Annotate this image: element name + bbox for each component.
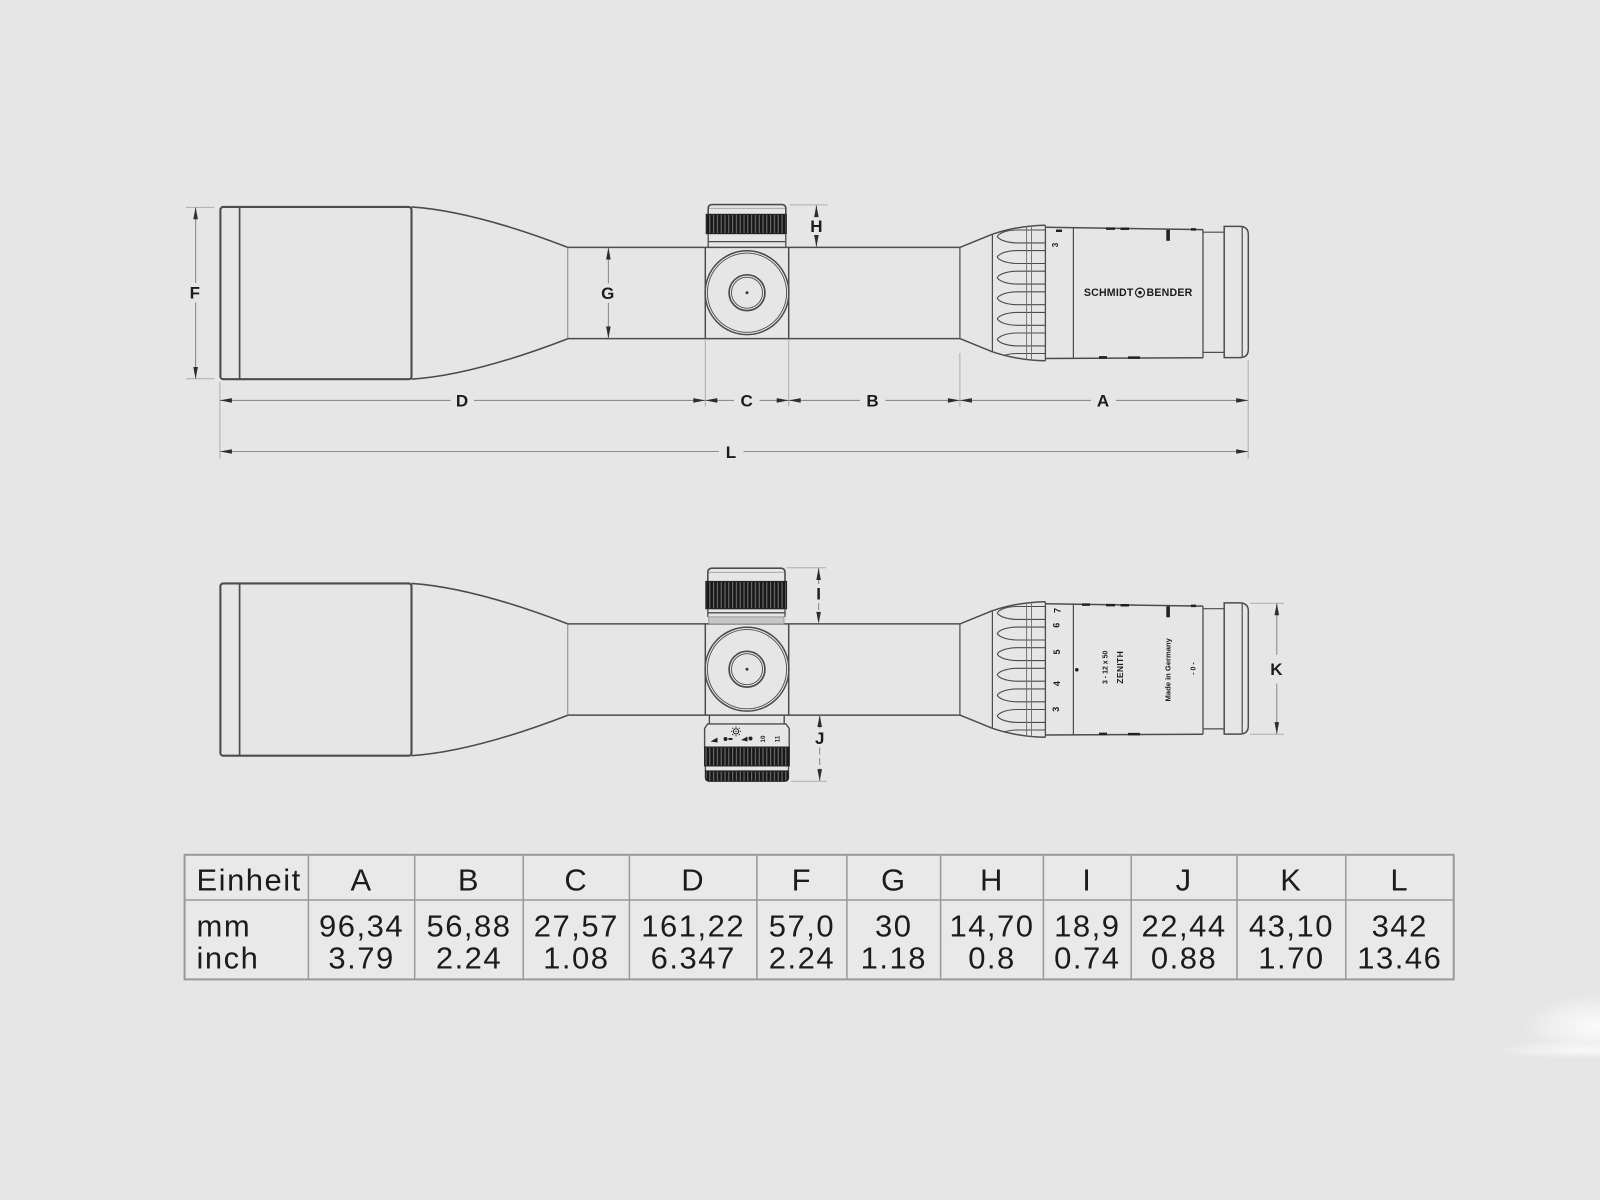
svg-text:18,9: 18,9 — [1054, 909, 1120, 944]
svg-text:inch: inch — [197, 941, 260, 976]
svg-text:22,44: 22,44 — [1142, 909, 1227, 944]
svg-text:A: A — [1097, 392, 1109, 411]
svg-text:96,34: 96,34 — [319, 909, 404, 944]
svg-text:3.79: 3.79 — [328, 941, 394, 976]
svg-text:SCHMIDT: SCHMIDT — [1084, 287, 1134, 299]
svg-text:342: 342 — [1372, 909, 1428, 944]
svg-text:I: I — [816, 585, 821, 604]
svg-text:C: C — [740, 392, 752, 411]
svg-text:G: G — [601, 284, 614, 303]
svg-text:D: D — [456, 392, 468, 411]
svg-text:3: 3 — [1051, 242, 1060, 247]
svg-text:B: B — [866, 392, 878, 411]
svg-text:D: D — [681, 863, 705, 898]
svg-text:11: 11 — [775, 735, 782, 742]
svg-text:G: G — [881, 863, 907, 898]
svg-text:J: J — [815, 729, 824, 748]
svg-text:BENDER: BENDER — [1147, 287, 1193, 299]
svg-text:1.08: 1.08 — [543, 941, 609, 976]
svg-text:K: K — [1270, 660, 1283, 679]
svg-text:13.46: 13.46 — [1357, 941, 1442, 976]
svg-text:14,70: 14,70 — [949, 909, 1034, 944]
svg-text:C: C — [564, 863, 588, 898]
svg-text:56,88: 56,88 — [426, 909, 511, 944]
svg-text:I: I — [1082, 863, 1092, 898]
svg-text:1.18: 1.18 — [861, 941, 927, 976]
svg-text:ZENITH: ZENITH — [1115, 651, 1125, 684]
svg-text:4: 4 — [1052, 681, 1062, 686]
svg-text:L: L — [726, 443, 736, 462]
svg-text:6: 6 — [1052, 623, 1062, 628]
svg-text:30: 30 — [875, 909, 912, 944]
svg-text:H: H — [810, 217, 822, 236]
svg-text:6.347: 6.347 — [651, 941, 736, 976]
svg-text:10: 10 — [760, 735, 767, 742]
svg-text:57,0: 57,0 — [769, 909, 835, 944]
svg-text:5: 5 — [1052, 649, 1062, 654]
svg-text:F: F — [792, 863, 812, 898]
svg-text:3: 3 — [1051, 707, 1061, 712]
svg-text:Made in Germany: Made in Germany — [1164, 637, 1173, 701]
svg-text:3 - 12 x 50: 3 - 12 x 50 — [1103, 650, 1110, 684]
svg-text:F: F — [190, 284, 200, 303]
svg-text:A: A — [351, 863, 373, 898]
svg-text:0.88: 0.88 — [1151, 941, 1217, 976]
svg-text:161,22: 161,22 — [641, 909, 745, 944]
svg-text:H: H — [980, 863, 1004, 898]
svg-text:- 0 -: - 0 - — [1191, 662, 1198, 675]
svg-text:L: L — [1390, 863, 1409, 898]
svg-text:2.24: 2.24 — [769, 941, 835, 976]
svg-text:J: J — [1176, 863, 1193, 898]
svg-text:mm: mm — [197, 909, 252, 944]
svg-text:K: K — [1280, 863, 1302, 898]
svg-text:B: B — [458, 863, 480, 898]
svg-text:Einheit: Einheit — [197, 863, 302, 898]
svg-text:1.70: 1.70 — [1258, 941, 1324, 976]
svg-text:0.8: 0.8 — [968, 941, 1016, 976]
svg-text:43,10: 43,10 — [1249, 909, 1334, 944]
svg-text:0.74: 0.74 — [1054, 941, 1120, 976]
svg-text:7: 7 — [1053, 608, 1063, 613]
svg-text:2.24: 2.24 — [436, 941, 502, 976]
svg-text:27,57: 27,57 — [534, 909, 619, 944]
